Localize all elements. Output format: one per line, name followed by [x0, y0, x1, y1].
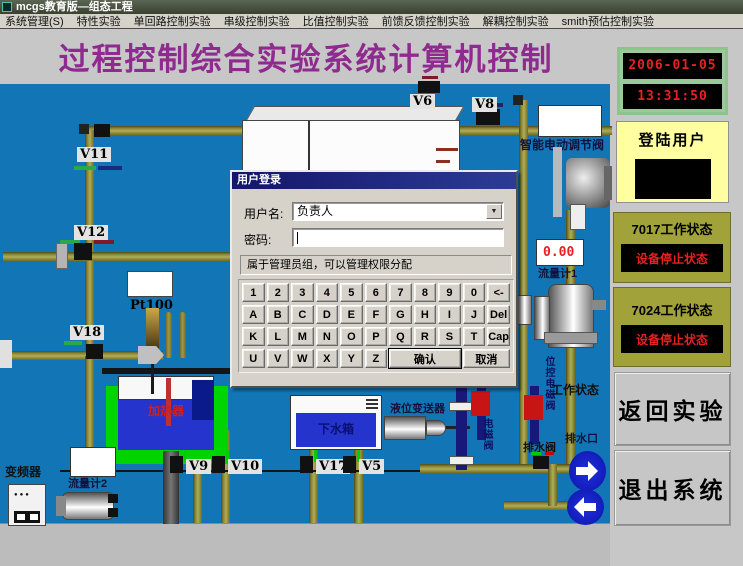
key-0[interactable]: 0 — [463, 283, 486, 302]
key-z[interactable]: Z — [365, 349, 388, 368]
key-x[interactable]: X — [316, 349, 339, 368]
clock-panel: 2006-01-05 13:31:50 — [617, 47, 728, 115]
valve-icon-v17[interactable] — [300, 456, 313, 473]
key-y[interactable]: Y — [340, 349, 363, 368]
arrow-left-icon — [574, 497, 584, 517]
menu-system[interactable]: 系统管理(S) — [5, 13, 64, 29]
key-4[interactable]: 4 — [316, 283, 339, 302]
valve-status-dash — [64, 341, 82, 345]
back-to-experiment-button[interactable]: 返回实验 — [614, 372, 731, 446]
arrow-right-icon — [588, 461, 598, 481]
valve-label-v9[interactable]: V9 — [186, 459, 211, 474]
tank-gauge-mark — [436, 148, 458, 151]
virtual-keyboard: 1 2 3 4 5 6 7 8 9 0 <- A B C D E F — [238, 279, 514, 373]
flow2-pump[interactable] — [62, 492, 114, 520]
pipe — [504, 501, 570, 510]
menu-smith[interactable]: smith预估控制实验 — [562, 13, 654, 29]
work-status-label: 工作状态 — [551, 384, 599, 397]
floor — [0, 523, 610, 566]
password-input[interactable] — [292, 228, 504, 247]
drain-outlet-label: 排水口 — [565, 433, 598, 445]
key-d[interactable]: D — [316, 305, 339, 324]
flow-direction-left — [567, 489, 604, 525]
valve-label-v12[interactable]: V12 — [74, 225, 108, 240]
status-7017-display: 设备停止状态 — [621, 244, 723, 272]
key-t[interactable]: T — [463, 327, 486, 346]
inverter-device[interactable]: ●●● — [8, 484, 46, 526]
valve-label-v5[interactable]: V5 — [359, 459, 384, 474]
login-dialog: 用户登录 用户名: 负责人 ▼ 密码: 属于管理员组，可以管理权限分配 1 2 … — [230, 170, 518, 388]
pipe-elbow — [513, 95, 523, 105]
dialog-body: 用户名: 负责人 ▼ 密码: 属于管理员组，可以管理权限分配 1 2 3 4 5… — [232, 189, 516, 386]
exit-system-button[interactable]: 退出系统 — [614, 450, 731, 526]
cancel-button[interactable]: 取消 — [463, 349, 510, 368]
key-cap[interactable]: Cap — [487, 327, 510, 346]
flow2-nub — [108, 494, 118, 503]
inverter-key — [17, 514, 25, 520]
flow1-stub — [592, 300, 606, 310]
valve-label-v11[interactable]: V11 — [77, 147, 111, 162]
valve-icon-v11[interactable] — [94, 124, 110, 137]
tank-hatch — [366, 403, 378, 405]
key-m[interactable]: M — [291, 327, 314, 346]
tank-frame — [102, 368, 234, 374]
key-a[interactable]: A — [242, 305, 265, 324]
username-label: 用户名: — [244, 205, 283, 222]
app-icon — [2, 2, 12, 12]
flow1-label: 流量计1 — [538, 268, 577, 280]
key-del[interactable]: Del — [487, 305, 510, 324]
menu-single-loop[interactable]: 单回路控制实验 — [134, 13, 211, 29]
inverter-key — [30, 514, 38, 520]
key-k[interactable]: K — [242, 327, 265, 346]
level-transmitter-nose — [426, 420, 446, 436]
menu-characteristic[interactable]: 特性实验 — [77, 13, 121, 29]
key-e[interactable]: E — [340, 305, 363, 324]
key-2[interactable]: 2 — [267, 283, 290, 302]
key-w[interactable]: W — [291, 349, 314, 368]
key-f[interactable]: F — [365, 305, 388, 324]
login-user-panel: 登陆用户 — [616, 121, 729, 203]
key-g[interactable]: G — [389, 305, 412, 324]
key-6[interactable]: 6 — [365, 283, 388, 302]
heater-label: 加热器 — [148, 402, 184, 419]
key-3[interactable]: 3 — [291, 283, 314, 302]
valve-icon-v5[interactable] — [343, 456, 356, 473]
time-display: 13:31:50 — [623, 84, 722, 110]
display-box — [538, 105, 602, 137]
arrow-tail — [576, 467, 588, 475]
key-p[interactable]: P — [365, 327, 388, 346]
key-l[interactable]: L — [267, 327, 290, 346]
sensor-stub — [179, 312, 186, 358]
valve-status-dash — [94, 240, 114, 244]
inverter-leds: ●●● — [14, 492, 31, 498]
login-user-title: 登陆用户 — [617, 129, 728, 150]
smart-valve-label: 智能电动调节阀 — [520, 139, 604, 151]
status-7017-title: 7017工作状态 — [614, 213, 730, 238]
arrow-tail — [584, 503, 596, 511]
key-o[interactable]: O — [340, 327, 363, 346]
pipe-cap — [56, 243, 68, 269]
solenoid-valve[interactable] — [471, 391, 490, 416]
valve-label-v10[interactable]: V10 — [228, 459, 262, 474]
status-panel-7017: 7017工作状态 设备停止状态 — [613, 212, 731, 283]
flow1-base — [544, 332, 598, 344]
valve-status-dash — [74, 166, 96, 170]
tank-hatch — [366, 399, 378, 401]
valve-status-dash — [422, 76, 438, 79]
key-u[interactable]: U — [242, 349, 265, 368]
flow2-flange — [56, 496, 66, 516]
dialog-titlebar[interactable]: 用户登录 — [232, 172, 516, 189]
key-s[interactable]: S — [438, 327, 461, 346]
status-7024-title: 7024工作状态 — [614, 288, 730, 319]
pipe-fitting — [0, 340, 12, 368]
key-v[interactable]: V — [267, 349, 290, 368]
key-j[interactable]: J — [463, 305, 486, 324]
valve-icon-v6[interactable] — [418, 81, 440, 93]
key-9[interactable]: 9 — [438, 283, 461, 302]
key-backspace[interactable]: <- — [487, 283, 510, 302]
date-display: 2006-01-05 — [623, 53, 722, 79]
confirm-button[interactable]: 确认 — [389, 349, 461, 368]
window-titlebar: mcgs教育版—组态工程 — [0, 0, 743, 14]
flow1-value: 0.00 — [537, 240, 583, 265]
sensor-stub — [165, 312, 172, 358]
flow2-display — [70, 447, 116, 477]
flow2-nub — [108, 508, 118, 517]
key-1[interactable]: 1 — [242, 283, 265, 302]
valve-icon-v9[interactable] — [170, 456, 183, 473]
solenoid-label: 电磁阀 — [479, 418, 494, 451]
menu-bar: 系统管理(S) 特性实验 单回路控制实验 串级控制实验 比值控制实验 前馈反馈控… — [0, 14, 743, 29]
dialog-title: 用户登录 — [237, 174, 281, 186]
smart-valve-box — [570, 204, 586, 230]
status-dash-red — [545, 452, 554, 455]
key-b[interactable]: B — [267, 305, 290, 324]
lower-tank-label: 下水箱 — [296, 413, 376, 445]
key-r[interactable]: R — [414, 327, 437, 346]
menu-decoupling[interactable]: 解耦控制实验 — [483, 13, 549, 29]
key-c[interactable]: C — [291, 305, 314, 324]
flow1-display: 0.00 — [536, 239, 584, 266]
pt100-display — [127, 271, 173, 297]
status-panel-7024: 7024工作状态 设备停止状态 — [613, 287, 731, 367]
valve-icon-v12[interactable] — [74, 243, 92, 260]
level-transmitter-label: 液位变送器 — [390, 403, 445, 415]
username-value: 负责人 — [297, 204, 333, 218]
page-title: 过程控制综合实验系统计算机控制 — [0, 38, 612, 82]
tank-gauge-mark — [436, 160, 450, 163]
inner-tank-shade — [192, 380, 214, 420]
pipe — [548, 464, 557, 506]
key-q[interactable]: Q — [389, 327, 412, 346]
flow-direction-right — [569, 451, 606, 491]
menu-cascade[interactable]: 串级控制实验 — [224, 13, 290, 29]
window-title: mcgs教育版—组态工程 — [16, 1, 133, 13]
tank-hatch — [366, 407, 378, 409]
key-7[interactable]: 7 — [389, 283, 412, 302]
key-5[interactable]: 5 — [340, 283, 363, 302]
key-8[interactable]: 8 — [414, 283, 437, 302]
status-7024-display: 设备停止状态 — [621, 325, 723, 353]
key-h[interactable]: H — [414, 305, 437, 324]
valve-label-v8[interactable]: V8 — [472, 97, 497, 112]
login-user-display — [635, 159, 711, 199]
menu-ratio[interactable]: 比值控制实验 — [303, 13, 369, 29]
menu-feedforward[interactable]: 前馈反馈控制实验 — [382, 13, 470, 29]
flow2-label: 流量计2 — [68, 478, 107, 490]
lower-tank-water: 下水箱 — [296, 413, 376, 447]
valve-icon-v18[interactable] — [86, 344, 103, 359]
inverter-label: 变频器 — [5, 466, 41, 479]
smart-valve-plate — [553, 147, 562, 217]
valve-icon-v10[interactable] — [212, 456, 225, 473]
username-combobox[interactable]: 负责人 ▼ — [292, 202, 504, 221]
level-transmitter-body — [384, 416, 426, 440]
text-caret — [297, 232, 298, 244]
key-n[interactable]: N — [316, 327, 339, 346]
status-dash-green — [531, 452, 541, 455]
valve-status-dash — [98, 166, 122, 170]
key-i[interactable]: I — [438, 305, 461, 324]
drain-valve-icon[interactable] — [533, 456, 549, 469]
pipe-flange — [516, 295, 532, 325]
password-label: 密码: — [244, 231, 271, 248]
mcgs-window: mcgs教育版—组态工程 系统管理(S) 特性实验 单回路控制实验 串级控制实验… — [0, 0, 743, 566]
valve-label-v6[interactable]: V6 — [410, 94, 435, 109]
permission-hint: 属于管理员组，可以管理权限分配 — [240, 255, 512, 275]
valve-label-v18[interactable]: V18 — [70, 325, 104, 340]
valve-flange — [449, 456, 474, 465]
combo-dropdown-button[interactable]: ▼ — [486, 204, 502, 219]
smart-valve-cap — [604, 166, 612, 200]
pipe-elbow — [79, 124, 89, 134]
